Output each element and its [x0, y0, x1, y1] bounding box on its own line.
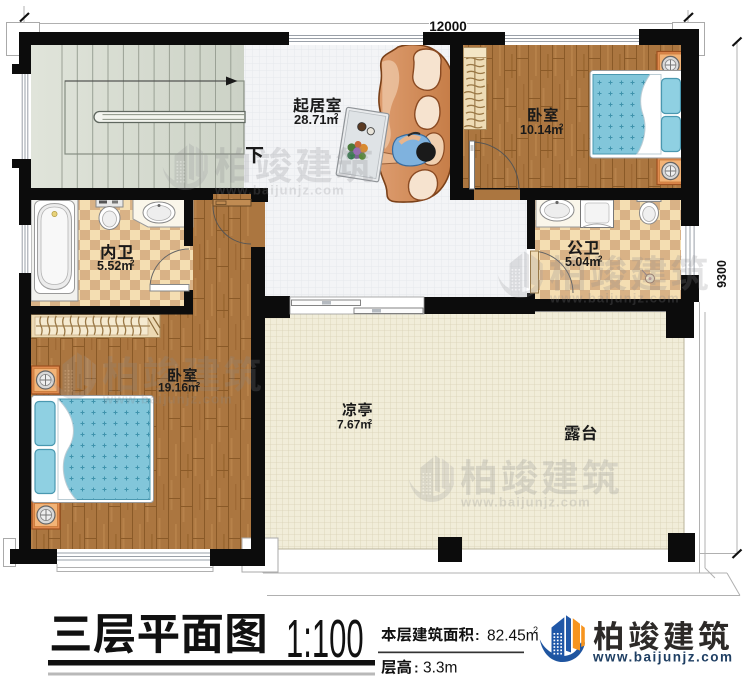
svg-text:12000: 12000	[429, 19, 467, 34]
svg-text:2: 2	[196, 380, 200, 389]
svg-text:7.67m: 7.67m	[337, 418, 371, 432]
svg-text:2: 2	[368, 417, 372, 426]
svg-text:2: 2	[334, 112, 339, 121]
svg-text:10.14m: 10.14m	[520, 123, 562, 137]
svg-text:www.baijunjz.com: www.baijunjz.com	[214, 183, 345, 198]
svg-text:www.baijunjz.com: www.baijunjz.com	[549, 291, 680, 306]
svg-text:5.52m: 5.52m	[97, 259, 132, 273]
svg-text:2: 2	[598, 255, 603, 264]
svg-text:2: 2	[533, 625, 538, 635]
svg-text:2: 2	[130, 259, 135, 268]
svg-text:3.3m: 3.3m	[423, 660, 457, 677]
svg-text:82.45m: 82.45m	[487, 628, 539, 645]
svg-text:9300: 9300	[715, 260, 729, 288]
svg-text::: :	[475, 627, 480, 643]
svg-text:www.baijunjz.com: www.baijunjz.com	[460, 495, 591, 510]
svg-text:5.04m: 5.04m	[565, 255, 600, 269]
svg-text:www.baijunjz.com: www.baijunjz.com	[592, 650, 734, 665]
svg-text:19.16m: 19.16m	[158, 381, 199, 395]
svg-text:2: 2	[559, 123, 564, 132]
svg-text::: :	[414, 660, 419, 676]
svg-text:28.71m: 28.71m	[294, 112, 338, 127]
